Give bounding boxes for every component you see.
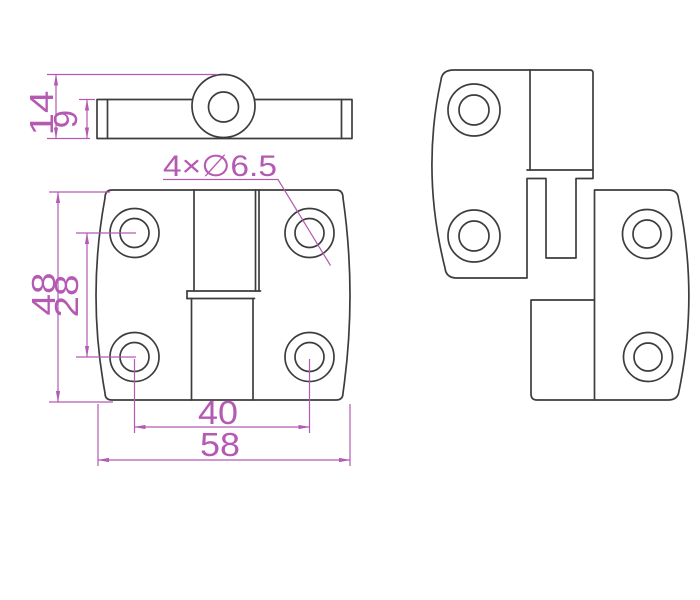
side-knuckle-outer-circle <box>192 75 255 138</box>
exploded-upper-hole-bottom-outer <box>448 210 500 262</box>
exploded-lower-hole-bottom-outer <box>624 333 673 382</box>
technical-drawing-canvas: 14 9 4×∅6.5 48 <box>0 0 700 600</box>
exploded-upper-hole-top-outer <box>448 84 500 136</box>
exploded-lower-hole-top-outer <box>623 210 672 259</box>
exploded-view <box>432 70 689 400</box>
front-hole-tr-outer <box>285 209 334 258</box>
dim-label-hole-spacing-vertical: 28 <box>48 275 85 318</box>
hole-callout-label: 4×∅6.5 <box>163 150 277 183</box>
drawing-page: 14 9 4×∅6.5 48 <box>0 0 700 600</box>
side-view: 14 9 <box>23 75 352 139</box>
front-view: 4×∅6.5 48 28 40 58 <box>25 150 350 466</box>
dim-label-side-thickness: 9 <box>47 110 84 128</box>
dim-label-front-width: 58 <box>200 426 240 463</box>
